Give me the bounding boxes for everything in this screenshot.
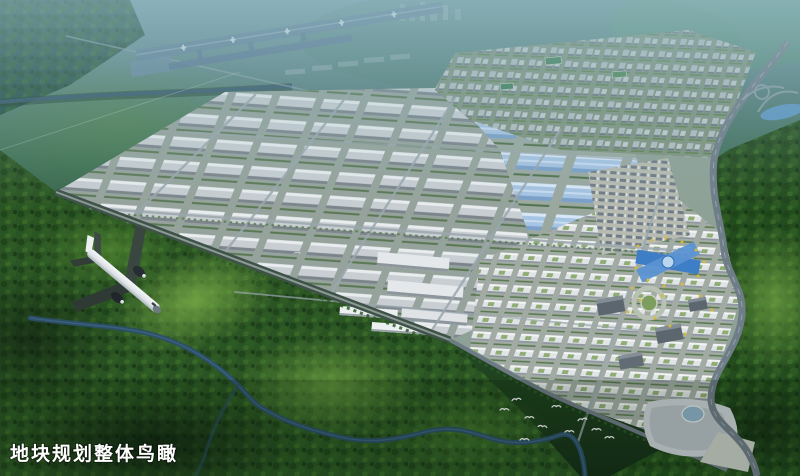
haze-overlay: [0, 0, 800, 210]
rendering-canvas: 地块规划整体鸟瞰: [0, 0, 800, 476]
caption: 地块规划整体鸟瞰: [10, 442, 178, 465]
aerial-rendering-image: 地块规划整体鸟瞰: [0, 0, 800, 476]
